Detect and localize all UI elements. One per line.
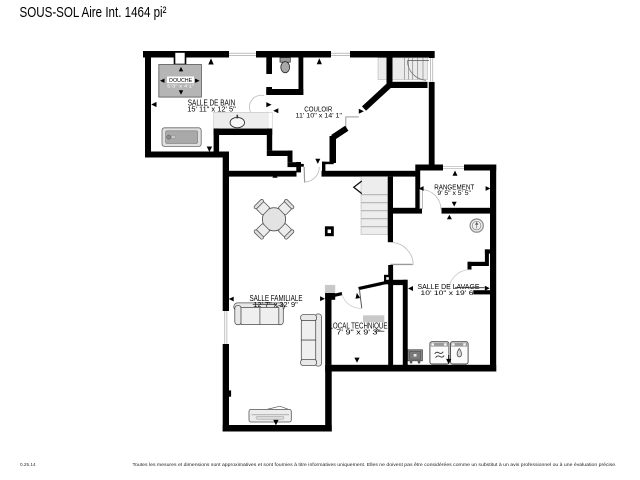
svg-text:11' 10" x 14' 1": 11' 10" x 14' 1" xyxy=(296,112,343,119)
svg-text:10' 10" x 19' 6": 10' 10" x 19' 6" xyxy=(421,290,478,297)
svg-text:0.25.14: 0.25.14 xyxy=(20,462,36,467)
svg-text:12' 7" x 32' 9": 12' 7" x 32' 9" xyxy=(253,302,298,309)
svg-text:15' 11" x 12' 5": 15' 11" x 12' 5" xyxy=(187,106,236,113)
svg-text:7' 9" x 9' 3": 7' 9" x 9' 3" xyxy=(336,330,381,337)
svg-text:SOUS-SOL Aire Int. 1464 pi²: SOUS-SOL Aire Int. 1464 pi² xyxy=(20,4,167,21)
svg-text:Toutes les mesures et dimensio: Toutes les mesures et dimensions sont ap… xyxy=(133,462,617,467)
svg-text:5'3" x 4'1": 5'3" x 4'1" xyxy=(167,84,194,89)
svg-text:9' 5" x 5' 5": 9' 5" x 5' 5" xyxy=(437,190,471,197)
